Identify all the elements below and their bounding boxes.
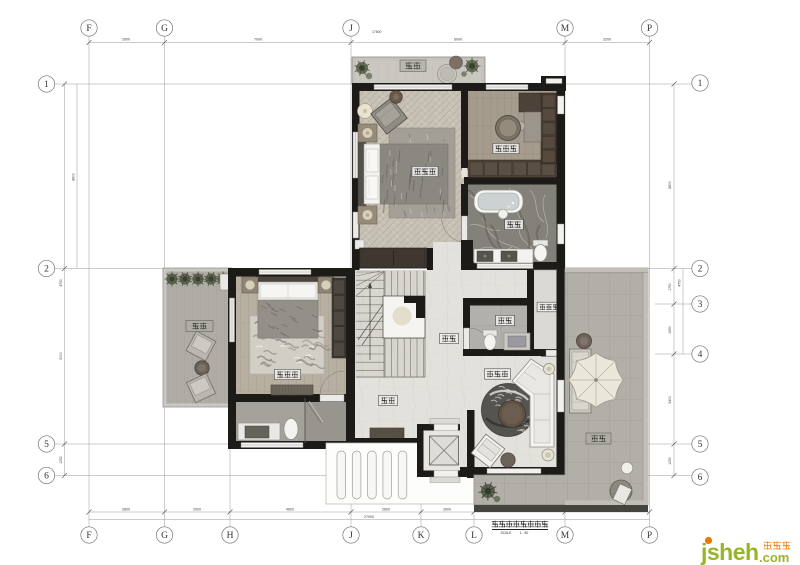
svg-text:2800: 2800 bbox=[122, 508, 130, 512]
svg-text:1250: 1250 bbox=[668, 457, 672, 465]
svg-text:1750: 1750 bbox=[668, 283, 672, 291]
svg-text:5: 5 bbox=[44, 440, 49, 450]
svg-text:4750: 4750 bbox=[59, 279, 63, 287]
svg-text:8800: 8800 bbox=[668, 181, 672, 189]
svg-text:J: J bbox=[349, 24, 353, 34]
svg-text:F: F bbox=[86, 24, 91, 34]
svg-text:8800: 8800 bbox=[72, 173, 76, 181]
svg-text:1250: 1250 bbox=[59, 456, 63, 464]
svg-text:27000: 27000 bbox=[364, 515, 374, 519]
svg-text:6000: 6000 bbox=[454, 38, 462, 42]
svg-text:1: 1 bbox=[44, 80, 49, 90]
svg-text:3: 3 bbox=[698, 300, 703, 310]
svg-text:5: 5 bbox=[698, 440, 703, 450]
svg-text:1 : 80: 1 : 80 bbox=[520, 531, 529, 535]
svg-text:2600: 2600 bbox=[382, 508, 390, 512]
svg-text:2: 2 bbox=[44, 265, 49, 275]
svg-text:17600: 17600 bbox=[372, 30, 382, 34]
svg-text:4750: 4750 bbox=[678, 279, 682, 287]
svg-text:3400: 3400 bbox=[668, 396, 672, 404]
svg-text:2500: 2500 bbox=[193, 508, 201, 512]
svg-text:1: 1 bbox=[698, 79, 703, 89]
svg-text:3200: 3200 bbox=[603, 38, 611, 42]
svg-text:2: 2 bbox=[698, 265, 703, 275]
svg-text:P: P bbox=[647, 531, 652, 541]
svg-text:L: L bbox=[471, 531, 477, 541]
svg-text:3000: 3000 bbox=[443, 508, 451, 512]
svg-text:2800: 2800 bbox=[122, 38, 130, 42]
svg-text:7000: 7000 bbox=[254, 38, 262, 42]
svg-text:6: 6 bbox=[698, 473, 703, 483]
svg-text:M: M bbox=[561, 24, 570, 34]
svg-text:1650: 1650 bbox=[668, 326, 672, 334]
svg-text:4: 4 bbox=[698, 350, 703, 360]
svg-text:M: M bbox=[561, 531, 570, 541]
svg-text:J: J bbox=[349, 531, 353, 541]
svg-text:K: K bbox=[418, 531, 425, 541]
svg-text:5000: 5000 bbox=[59, 352, 63, 360]
svg-text:.com: .com bbox=[759, 550, 789, 565]
svg-text:F: F bbox=[86, 531, 91, 541]
svg-text:4600: 4600 bbox=[286, 508, 294, 512]
svg-text:G: G bbox=[161, 531, 168, 541]
svg-text:P: P bbox=[647, 24, 652, 34]
svg-text:SCALE: SCALE bbox=[500, 531, 512, 535]
svg-text:H: H bbox=[227, 531, 234, 541]
svg-text:G: G bbox=[161, 24, 168, 34]
svg-text:6: 6 bbox=[44, 472, 49, 482]
